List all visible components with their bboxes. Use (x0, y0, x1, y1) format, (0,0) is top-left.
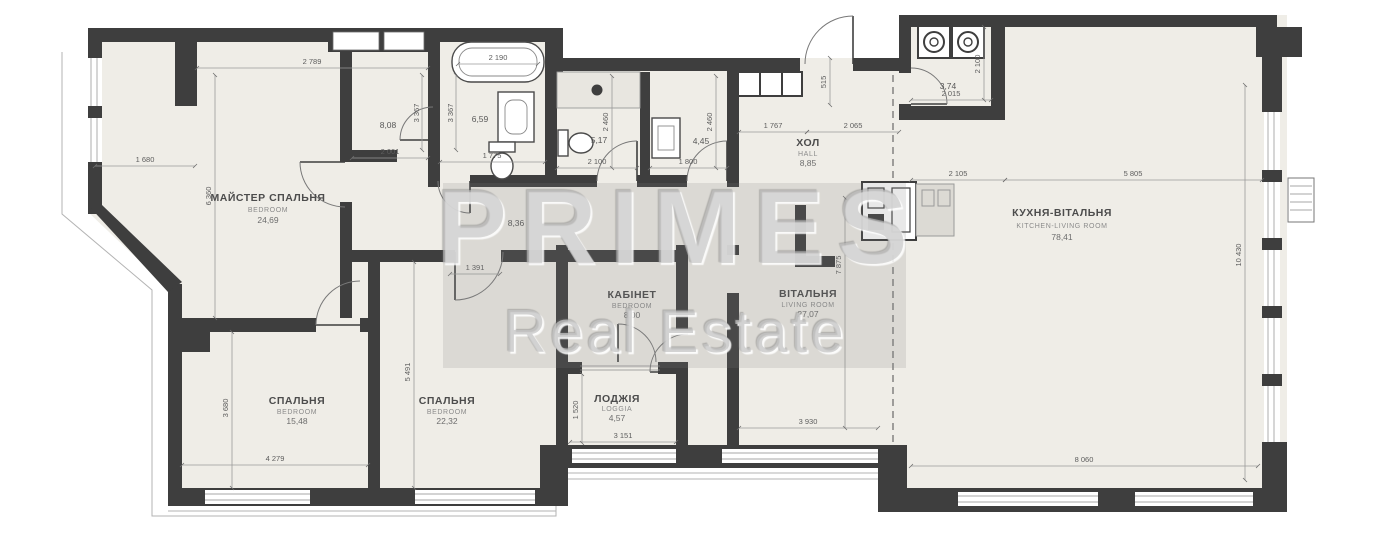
washer-icons (918, 26, 984, 58)
room-laundry-area: 3,74 (940, 81, 957, 91)
room-loggia-name: ЛОДЖІЯ (594, 393, 640, 405)
vanity-icon (498, 92, 534, 142)
room-bedroom-large-type: BEDROOM (427, 409, 467, 416)
room-bathroom-master-area: 6,59 (472, 114, 489, 124)
floorplan-canvas: 2 789 1 680 2 001 1 775 2 190 2 100 1 80… (0, 0, 1400, 549)
wardrobe-icon (738, 72, 802, 96)
dim-hall-width-right: 2 065 (844, 121, 863, 130)
room-kitchen-living-name: КУХНЯ-ВІТАЛЬНЯ (1012, 207, 1112, 219)
dim-wardrobe-depth-left: 3 367 (412, 104, 421, 123)
dim-kitchen-width-left: 2 105 (949, 169, 968, 178)
room-bedroom-large-name: СПАЛЬНЯ (419, 395, 475, 407)
room-wc-area: 4,45 (693, 136, 710, 146)
room-kitchen-living-type: KITCHEN-LIVING ROOM (1016, 223, 1107, 230)
dim-bedroom-small-width: 4 279 (266, 454, 285, 463)
room-master-area: 24,69 (257, 215, 279, 225)
watermark-tagline: Real Estate (436, 302, 914, 362)
dim-bedroom-large-depth: 5 491 (403, 363, 412, 382)
room-kitchen-living-area: 78,41 (1051, 232, 1073, 242)
sink-counter-icon (557, 72, 640, 108)
room-bathroom-area: 5,17 (591, 135, 608, 145)
room-bedroom-small-name: СПАЛЬНЯ (269, 395, 325, 407)
watermark-brand: PRIMES (436, 174, 914, 280)
dim-bathroom-width: 2 100 (588, 157, 607, 166)
room-bedroom-small-area: 15,48 (286, 416, 308, 426)
dim-kitchen-width-right: 5 805 (1124, 169, 1143, 178)
dim-kitchen-depth: 10 430 (1234, 244, 1243, 267)
room-hall-name: ХОЛ (796, 137, 820, 149)
dim-hall-width-left: 1 767 (764, 121, 783, 130)
dim-bedroom-small-depth: 3 680 (221, 399, 230, 418)
dim-living-width: 3 930 (799, 417, 818, 426)
room-bedroom-large-area: 22,32 (436, 416, 458, 426)
dim-hall-niche: 515 (819, 76, 828, 89)
room-loggia-area: 4,57 (609, 413, 626, 423)
dim-wardrobe-depth-right: 3 367 (446, 104, 455, 123)
room-wardrobe-area: 8,08 (380, 120, 397, 130)
dim-tub-width: 2 190 (489, 53, 508, 62)
bathtub-icon (452, 42, 544, 82)
dim-loggia-width: 3 151 (614, 431, 633, 440)
dim-laundry-depth: 2 100 (973, 55, 982, 74)
dim-master-bay: 1 680 (136, 155, 155, 164)
dim-bath-master-width: 1 775 (483, 151, 502, 160)
room-hall-type: HALL (798, 151, 818, 158)
ac-unit-icon (1288, 178, 1314, 222)
wc-sink-icon (652, 118, 680, 158)
room-bedroom-small-type: BEDROOM (277, 409, 317, 416)
dim-wc-width: 1 800 (679, 157, 698, 166)
dim-master-width: 2 789 (303, 57, 322, 66)
dim-loggia-depth: 1 520 (571, 401, 580, 420)
room-loggia-type: LOGGIA (602, 406, 632, 413)
room-master-type: BEDROOM (248, 207, 288, 214)
room-master-name: МАЙСТЕР СПАЛЬНЯ (211, 191, 326, 204)
dim-bathroom-depth: 2 460 (601, 113, 610, 132)
room-hall-area: 8,85 (800, 158, 817, 168)
dim-wc-depth: 2 460 (705, 113, 714, 132)
dim-wardrobe-width: 2 001 (381, 147, 400, 156)
dim-kitchen-bottom: 8 060 (1075, 455, 1094, 464)
